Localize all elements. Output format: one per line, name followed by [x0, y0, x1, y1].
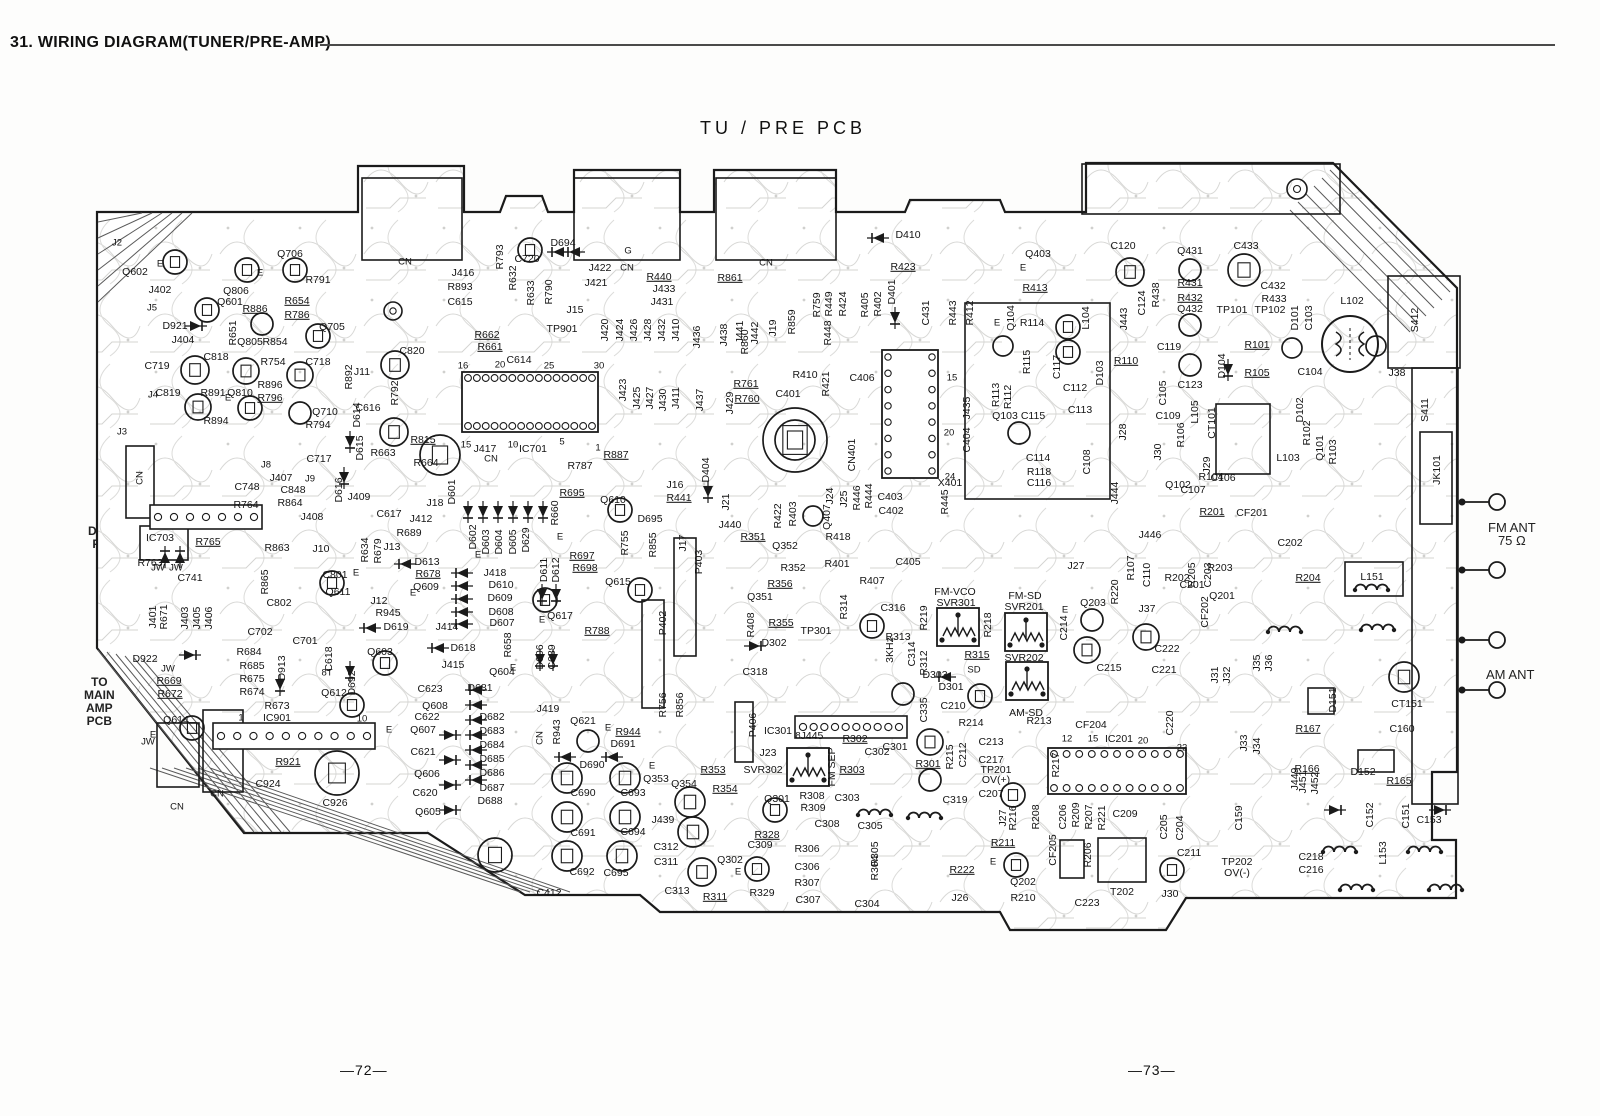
component-label: R328: [754, 829, 779, 841]
component-label: R207: [1083, 804, 1095, 829]
component-label: C694: [620, 826, 645, 838]
component-label: 16: [458, 361, 469, 372]
component-label: C214: [1058, 615, 1070, 640]
component-label: OV(-): [1224, 867, 1250, 879]
component-label: C207: [978, 788, 1003, 800]
component-label: CN: [398, 257, 412, 268]
component-label: C818: [203, 351, 228, 363]
component-label: CN: [170, 802, 184, 813]
component-label: JW: [161, 664, 175, 675]
component-label: C116: [1027, 477, 1051, 489]
component-label: J428: [642, 318, 654, 341]
component-label: C692: [569, 866, 594, 878]
component-label: R855: [647, 532, 659, 557]
component-label: C223: [1074, 897, 1099, 909]
component-label: R423: [890, 261, 915, 273]
antenna-terminal: [1489, 632, 1505, 648]
component-label: R675: [239, 673, 264, 685]
component-label: C124: [1136, 290, 1148, 315]
component-label: R113: [990, 383, 1002, 407]
component-label: R302: [842, 733, 867, 745]
component-label: C105: [1157, 380, 1169, 405]
component-label: D629: [520, 527, 532, 552]
component-label: J432: [656, 318, 668, 341]
component-label: E: [1020, 263, 1026, 274]
component-label: R311: [703, 891, 727, 903]
component-label: J3: [117, 427, 127, 438]
component-label: 12: [1062, 734, 1073, 745]
component-label: R444: [863, 483, 875, 508]
component-label: C113: [1068, 404, 1092, 416]
component-label: J17: [677, 534, 689, 551]
component-label: R865: [259, 569, 271, 594]
component-label: E: [539, 615, 545, 626]
component-label: C107: [1180, 484, 1205, 496]
component-label: J30: [1162, 888, 1179, 900]
component-label: C690: [570, 787, 595, 799]
component-label: R315: [964, 649, 989, 661]
component-label: D609: [487, 592, 512, 604]
component-label: J15: [567, 304, 584, 316]
component-label: Q431: [1177, 245, 1203, 257]
component-label: E: [410, 588, 416, 599]
component-label: D616: [333, 477, 345, 502]
component-label: R112: [1002, 385, 1014, 409]
component-label: C318: [742, 666, 767, 678]
component-label: G: [624, 246, 631, 257]
component-label: R222: [949, 864, 974, 876]
component-label: Q202: [1010, 876, 1036, 888]
component-label: D688: [477, 795, 502, 807]
component-label: R793: [494, 244, 506, 269]
component-label: J414: [436, 621, 459, 633]
component-label: D694: [550, 237, 575, 249]
component-label: C621: [410, 746, 435, 758]
component-label: TP102: [1255, 304, 1286, 316]
component-label: J431: [651, 296, 674, 308]
component-label: D612: [550, 557, 562, 582]
component-label: R214: [958, 717, 983, 729]
component-label: C335: [918, 697, 930, 722]
component-label: R438: [1150, 282, 1162, 307]
component-label: J444: [1109, 481, 1121, 504]
component-label: J18: [427, 497, 444, 509]
component-label: 3KHz: [884, 637, 896, 663]
component-label: Q403: [1025, 248, 1051, 260]
component-label: E: [557, 532, 563, 543]
component-label: CN: [759, 258, 773, 269]
component-label: R356: [767, 578, 792, 590]
component-label: J28: [1117, 423, 1129, 440]
component-label: R204: [1295, 572, 1320, 584]
component-label: R664: [413, 457, 438, 469]
component-label: R354: [712, 783, 737, 795]
component-label: C110: [1141, 563, 1153, 587]
component-label: C433: [1233, 240, 1258, 252]
component-label: R115: [1021, 350, 1033, 374]
component-label: R215: [944, 744, 956, 769]
component-label: D690: [579, 759, 604, 771]
component-label: R662: [474, 329, 499, 341]
component-label: J424: [614, 318, 626, 341]
component-label: R887: [603, 449, 628, 461]
component-label: R754: [260, 356, 285, 368]
component-label: D913: [276, 655, 288, 680]
component-label: OV(+): [982, 774, 1010, 786]
component-label: C403: [877, 491, 902, 503]
component-label: R104: [1198, 471, 1223, 483]
component-label: Q104: [1005, 305, 1017, 331]
component-label: SVR301: [936, 597, 975, 609]
component-label: C153: [1416, 814, 1441, 826]
component-label: R921: [275, 756, 300, 768]
component-label: C210: [940, 700, 965, 712]
component-label: C412: [536, 887, 561, 899]
component-label: C123: [1177, 379, 1202, 391]
component-label: C201: [1179, 579, 1204, 591]
component-label: R893: [447, 281, 472, 293]
component-label: C405: [895, 556, 920, 568]
component-label: C302: [864, 746, 889, 758]
component-label: C615: [447, 296, 472, 308]
component-label: R859: [786, 309, 798, 334]
component-label: D604: [493, 529, 505, 554]
component-label: Q351: [747, 591, 773, 603]
component-label: CN: [210, 789, 224, 800]
component-label: C924: [255, 778, 280, 790]
component-label: C115: [1021, 410, 1045, 422]
component-label: R854: [262, 336, 287, 348]
component-label: IC703: [146, 532, 174, 544]
component-label: Q611: [326, 586, 351, 598]
component-label: J25: [838, 490, 850, 507]
component-label: D404: [700, 457, 712, 482]
component-label: C695: [603, 867, 628, 879]
component-label: J415: [442, 659, 465, 671]
component-label: C741: [177, 572, 202, 584]
component-label: R165: [1386, 775, 1411, 787]
component-label: R673: [264, 700, 289, 712]
component-label: Q432: [1177, 303, 1203, 315]
component-label: J418: [484, 567, 507, 579]
component-label: C109: [1155, 410, 1180, 422]
component-label: R413: [1022, 282, 1047, 294]
component-label: J5: [147, 303, 157, 314]
component-label: J9: [305, 474, 315, 485]
component-label: C319: [942, 794, 967, 806]
component-label: R167: [1295, 723, 1320, 735]
component-label: C820: [399, 345, 424, 357]
component-label: R684: [236, 646, 261, 658]
component-label: R632: [507, 265, 519, 290]
component-label: R106: [1175, 422, 1187, 447]
component-label: C108: [1081, 449, 1093, 474]
component-label: R654: [284, 295, 309, 307]
component-label: TP901: [547, 323, 578, 335]
component-label: C718: [305, 356, 330, 368]
component-label: R663: [370, 447, 395, 459]
component-label: R308: [799, 790, 824, 802]
component-label: C209: [1112, 808, 1137, 820]
component-label: R412: [964, 300, 976, 325]
component-label: R218: [982, 612, 994, 637]
component-label: R796: [257, 392, 282, 404]
component-label: D102: [1294, 397, 1306, 422]
component-label: J38: [1389, 367, 1406, 379]
component-label: P403: [693, 550, 705, 575]
component-label: C211: [1177, 847, 1201, 859]
component-label: Q706: [277, 248, 303, 260]
component-label: J426: [628, 318, 640, 341]
component-label: R756: [657, 692, 669, 717]
component-label: E: [353, 568, 359, 579]
component-label: Q614: [163, 714, 189, 726]
component-label: R102: [1301, 420, 1313, 445]
component-label: R891: [200, 387, 225, 399]
component-label: J427: [644, 386, 656, 409]
component-label: R110: [1114, 355, 1138, 367]
component-label: C701: [292, 635, 317, 647]
component-label: J30: [1152, 443, 1164, 460]
component-label: C202: [1277, 537, 1302, 549]
component-label: CN: [484, 454, 498, 465]
component-label: C702: [247, 626, 272, 638]
component-label: J411: [670, 387, 682, 409]
component-label: J416: [452, 267, 475, 279]
component-label: D922: [132, 653, 157, 665]
component-label: R788: [584, 625, 609, 637]
component-label: R355: [768, 617, 793, 629]
component-label: SVR302: [743, 764, 782, 776]
component-label: E: [157, 259, 163, 270]
component-label: R408: [745, 612, 757, 637]
component-label: D103: [1094, 360, 1106, 385]
component-label: J443: [1118, 307, 1130, 330]
component-label: Q617: [547, 610, 573, 622]
component-label: J23: [760, 747, 777, 759]
component-label: D603: [480, 529, 492, 554]
component-label: C689: [546, 644, 558, 669]
component-label: CF205: [1047, 834, 1059, 866]
component-label: 20: [495, 360, 506, 371]
component-label: Q602: [122, 266, 148, 278]
component-label: R353: [700, 764, 725, 776]
component-label: J437: [694, 388, 706, 411]
component-label: R407: [859, 575, 884, 587]
component-label: 1: [238, 713, 243, 724]
component-label: J438: [718, 323, 730, 346]
component-label: C151: [1400, 803, 1412, 828]
component-label: C221: [1151, 664, 1176, 676]
component-label: C406: [849, 372, 874, 384]
component-label: R765: [195, 536, 220, 548]
component-label: R661: [477, 341, 502, 353]
component-label: R402: [872, 291, 884, 316]
component-label: J34: [1251, 737, 1263, 754]
component-label: R107: [1125, 555, 1137, 580]
component-label: C120: [1110, 240, 1135, 252]
component-label: Q407: [821, 504, 833, 530]
component-label: C112: [1063, 382, 1087, 394]
component-label: Q710: [312, 406, 338, 418]
antenna-terminal: [1489, 682, 1505, 698]
component-label: R697: [569, 550, 594, 562]
component-label: CN401: [846, 438, 858, 471]
component-label: 30: [594, 361, 605, 372]
component-label: R314: [838, 594, 850, 619]
component-label: J33: [1238, 734, 1250, 751]
component-label: R203: [1207, 562, 1232, 574]
component-label: C848: [280, 484, 305, 496]
component-label: J423: [617, 378, 629, 401]
component-label: J24: [824, 487, 836, 504]
component-label: C307: [795, 894, 820, 906]
component-label: C311: [654, 856, 678, 868]
component-label: J32: [1221, 666, 1233, 683]
component-label: IC201: [1105, 733, 1133, 745]
component-label: P406: [747, 713, 759, 738]
component-label: D619: [383, 621, 408, 633]
component-label: R896: [257, 379, 282, 391]
component-label: D682: [479, 711, 504, 723]
component-label: E: [225, 393, 231, 404]
component-label: E: [386, 725, 392, 736]
component-label: C614: [506, 354, 531, 366]
component-label: SVR202: [1004, 652, 1043, 664]
component-label: C926: [322, 797, 347, 809]
component-label: R405: [859, 292, 871, 317]
component-label: C622: [414, 711, 439, 723]
component-label: Q101: [1314, 435, 1326, 461]
component-label: J420: [599, 318, 611, 341]
component-label: JW: [151, 563, 165, 574]
component-label: 10: [508, 440, 519, 451]
component-label: E: [994, 318, 1000, 329]
component-label: 20: [944, 428, 955, 439]
component-label: R791: [305, 274, 330, 286]
component-label: J436: [691, 325, 703, 348]
component-label: R217: [1050, 752, 1062, 777]
component-label: R863: [264, 542, 289, 554]
component-label: J446: [1139, 529, 1162, 541]
component-label: C802: [266, 597, 291, 609]
component-label: D152: [1350, 766, 1375, 778]
component-label: C401: [775, 388, 800, 400]
component-label: C205: [1158, 814, 1170, 839]
component-label: R103: [1327, 439, 1339, 464]
sip-connector: [213, 723, 375, 749]
component-label: J405: [191, 606, 203, 629]
component-label: Q607: [410, 724, 436, 736]
component-label: C304: [854, 898, 879, 910]
component-label: J13: [384, 541, 401, 553]
component-label: R309: [800, 802, 825, 814]
component-label: C312: [653, 841, 678, 853]
component-label: R216: [1007, 805, 1019, 830]
component-label: R329: [749, 887, 774, 899]
component-label: J412: [410, 513, 433, 525]
service-manual-page: 31. WIRING DIAGRAM(TUNER/PRE-AMP) TU / P…: [0, 0, 1600, 1116]
component-label: R306: [794, 843, 819, 855]
component-label: C432: [1260, 280, 1285, 292]
component-label: 25: [544, 361, 555, 372]
component-label: Q201: [1209, 590, 1235, 602]
component-label: D613: [414, 556, 439, 568]
component-label: D686: [479, 767, 504, 779]
component-label: R790: [543, 279, 555, 304]
component-label: R352: [780, 562, 805, 574]
component-label: E: [475, 550, 481, 561]
component-label: R634: [359, 537, 371, 562]
component-label: CT101: [1206, 407, 1218, 439]
component-label: R764: [233, 499, 258, 511]
component-label: C222: [1154, 643, 1179, 655]
component-label: J421: [585, 277, 608, 289]
component-label: Q609: [413, 581, 439, 593]
component-label: P402: [657, 611, 669, 636]
component-label: R761: [733, 378, 758, 390]
component-label: J439: [652, 814, 675, 826]
pcb-wiring-diagram: J2Q602J402J5Q706Q806Q601R886R654R786R791…: [0, 0, 1600, 1116]
component-label: D683: [479, 725, 504, 737]
component-label: R864: [277, 497, 302, 509]
component-label: R101: [1244, 339, 1269, 351]
component-label: C618: [323, 646, 335, 671]
component-label: C801: [322, 569, 347, 581]
component-label: C218: [1298, 851, 1323, 863]
component-label: D681: [467, 682, 492, 694]
component-label: Q203: [1080, 597, 1106, 609]
component-label: R443: [947, 300, 959, 325]
component-label: R695: [559, 487, 584, 499]
component-label: E: [735, 867, 741, 878]
component-label: R206: [1082, 842, 1094, 867]
component-label: C748: [234, 481, 259, 493]
component-label: D614: [351, 402, 363, 427]
component-label: C308: [814, 818, 839, 830]
component-label: E: [649, 761, 655, 772]
component-label: C617: [376, 508, 401, 520]
component-label: J440: [719, 519, 742, 531]
component-label: C216: [1298, 864, 1323, 876]
component-label: R303: [839, 764, 864, 776]
component-label: R943: [551, 719, 563, 744]
component-label: C215: [1096, 662, 1121, 674]
component-label: C691: [570, 827, 595, 839]
component-label: C305: [857, 820, 882, 832]
component-label: D606: [534, 644, 546, 669]
component-label: D410: [895, 229, 920, 241]
component-label: R424: [837, 291, 849, 316]
component-label: D921: [162, 320, 187, 332]
component-label: J452: [1309, 771, 1321, 794]
component-label: C819: [155, 387, 180, 399]
component-label: J26: [952, 892, 969, 904]
component-label: E: [257, 268, 263, 279]
component-label: C303: [834, 792, 859, 804]
component-label: J12: [371, 595, 388, 607]
component-label: 15: [461, 440, 472, 451]
component-label: C404: [961, 427, 973, 452]
component-label: C693: [620, 787, 645, 799]
component-label: IC301: [764, 725, 792, 737]
component-label: Q805: [237, 336, 263, 348]
component-label: L151: [1360, 571, 1384, 583]
component-label: C160: [1389, 723, 1414, 735]
component-label: D685: [479, 753, 504, 765]
component-label: CN: [620, 263, 634, 274]
component-label: C114: [1026, 452, 1050, 464]
